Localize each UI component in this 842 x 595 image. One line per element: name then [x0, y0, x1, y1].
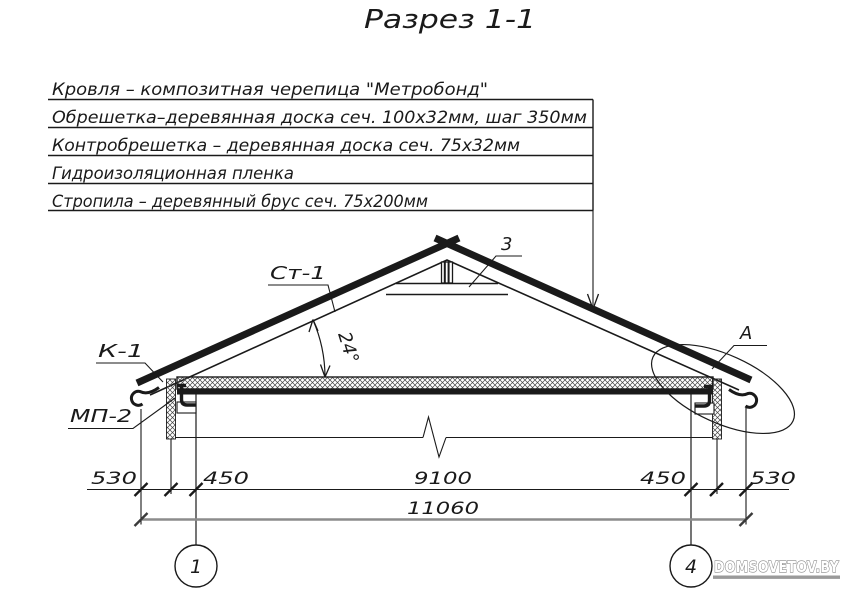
tie-callout-label: 3 [501, 234, 512, 255]
dim-total-11060: 11060 [407, 499, 479, 519]
slope-angle-dimension [309, 320, 330, 378]
page-title: Разрез 1-1 [364, 5, 536, 35]
collar-tie [386, 284, 508, 295]
spec-row-membrane: Гидроизоляционная пленка [52, 164, 294, 184]
left-gutter-hook [131, 388, 159, 406]
axis-markers [175, 545, 712, 587]
roof-structure [137, 238, 751, 395]
ceiling-insulation-hatch [177, 377, 713, 389]
spec-row-roofing: Кровля – композитная черепица "Метробонд… [52, 80, 488, 100]
drawing-sheet: Разрез 1-1 Кровля – композитная черепица… [0, 0, 842, 595]
eave-callout-label: К-1 [98, 341, 144, 362]
dim-530-right: 530 [750, 469, 796, 489]
ridge-post [442, 262, 453, 283]
ceiling-slab [177, 377, 713, 395]
dim-530-left: 530 [91, 469, 137, 489]
right-gutter-hook [729, 390, 757, 408]
left-wall-hatch [167, 379, 176, 439]
dim-450-left: 450 [203, 469, 249, 489]
axis-number-4: 4 [685, 556, 697, 578]
dimension-values: 530 450 9100 450 530 11060 [91, 469, 796, 519]
section-drawing: Разрез 1-1 Кровля – композитная черепица… [0, 0, 842, 595]
slope-angle-label: 24° [333, 329, 362, 366]
rafter-callout-label: Ст-1 [270, 263, 326, 284]
angle-arc [313, 320, 325, 377]
mount-callout-label: МП-2 [70, 406, 132, 427]
spec-row-battens: Обрешетка–деревянная доска сеч. 100х32мм… [52, 108, 587, 128]
detail-callout-ellipse [639, 326, 807, 452]
watermark-text: DOMSOVETOV.BY [714, 558, 840, 576]
detail-callout-label: А [739, 323, 752, 344]
ceiling-board [177, 390, 713, 395]
break-symbol [423, 417, 446, 457]
dim-9100: 9100 [414, 469, 472, 489]
watermark: DOMSOVETOV.BY [713, 558, 840, 579]
spec-row-rafters: Стропила – деревянный брус сеч. 75х200мм [52, 192, 428, 212]
axis-number-1: 1 [190, 556, 202, 578]
roofing-band-left [137, 238, 459, 383]
spec-row-counter-battens: Контробрешетка – деревянная доска сеч. 7… [52, 136, 520, 156]
dim-450-right: 450 [640, 469, 686, 489]
watermark-underline [713, 576, 840, 579]
